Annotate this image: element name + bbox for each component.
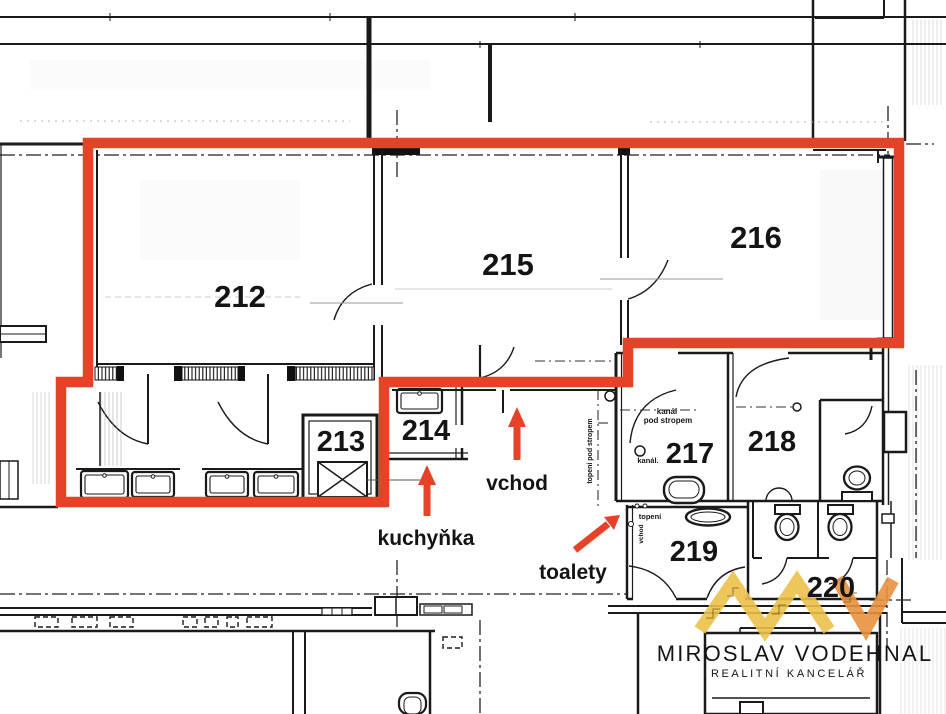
room-label-220: 220 — [807, 572, 855, 604]
radiator-icon — [72, 617, 97, 627]
note-duct-line2: pod stropem — [644, 416, 692, 425]
note-entrance-small: vchod — [638, 524, 645, 543]
logo-monogram — [700, 579, 893, 630]
note-duct-short: kanál. — [637, 456, 658, 465]
toilet-icon — [775, 505, 800, 540]
plan-notes: kanál pod stropem kanál. topení topení p… — [587, 407, 692, 544]
room-label-219: 219 — [670, 536, 718, 568]
room-label-216: 216 — [730, 220, 782, 255]
note-heating-ceiling: topení pod stropem — [587, 418, 594, 483]
sink-icon — [397, 389, 442, 413]
toalety-arrow — [575, 515, 620, 550]
toilet-icon — [664, 477, 704, 503]
sink-icon — [132, 472, 174, 497]
note-duct-line1: kanál — [657, 407, 677, 416]
floor-plan-page: 212 215 216 213 214 217 218 219 220 kaná… — [0, 0, 946, 714]
label-toalety: toalety — [539, 561, 607, 584]
toilet-icon — [842, 467, 872, 502]
logo-name: MIROSLAV VODEHNAL — [657, 641, 934, 666]
radiator-icon — [110, 617, 133, 627]
room-label-215: 215 — [482, 247, 534, 282]
toilet-icon — [399, 693, 426, 714]
toilet-icon — [828, 505, 853, 540]
radiator-icon — [205, 617, 218, 627]
sink-icon — [254, 472, 298, 497]
kuchynka-arrow — [418, 465, 436, 516]
radiator-icon — [227, 617, 238, 627]
rooms-219-220 — [627, 501, 902, 623]
radiator-icon — [247, 617, 272, 627]
vchod-arrow — [508, 407, 526, 460]
room-label-213: 213 — [317, 426, 365, 458]
room-label-218: 218 — [748, 426, 796, 458]
radiator-icon — [183, 617, 197, 627]
washroom-sinks — [81, 471, 298, 498]
logo-wordmark: MIROSLAV VODEHNAL REALITNÍ KANCELÁŘ — [657, 641, 934, 680]
note-heating: topení — [639, 512, 662, 521]
sink-icon — [81, 471, 128, 498]
basin-icon — [766, 488, 792, 501]
sink-icon — [206, 472, 248, 497]
label-vchod: vchod — [486, 472, 548, 495]
room-label-217: 217 — [666, 438, 714, 470]
room-labels: 212 215 216 213 214 217 218 219 220 — [214, 220, 855, 604]
room-label-212: 212 — [214, 279, 266, 314]
label-kuchynka: kuchyňka — [378, 527, 475, 550]
floor-plan: 212 215 216 213 214 217 218 219 220 kaná… — [0, 0, 946, 714]
room-label-214: 214 — [402, 415, 450, 447]
logo-subtitle: REALITNÍ KANCELÁŘ — [711, 667, 867, 680]
radiator-icon — [443, 637, 462, 648]
radiator-icon — [35, 617, 58, 627]
